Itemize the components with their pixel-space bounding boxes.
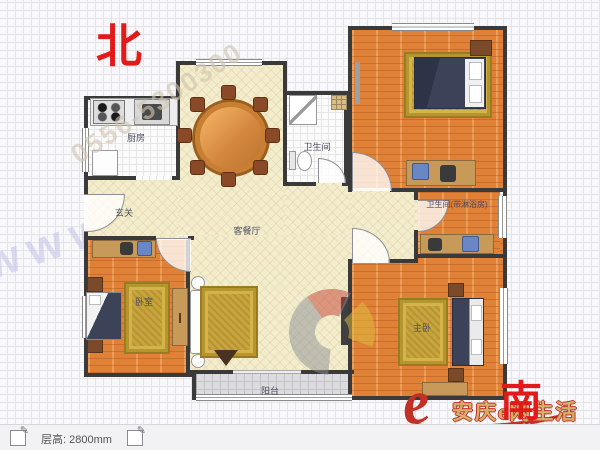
window xyxy=(196,59,262,66)
entrance-label: 玄关 xyxy=(104,208,144,219)
computer xyxy=(428,238,442,251)
sink-basin xyxy=(142,104,162,120)
bath-shelf xyxy=(331,95,347,110)
wall-segment xyxy=(414,254,507,258)
pencil-icon: ✎ xyxy=(20,424,29,437)
hall-floor xyxy=(285,182,350,235)
bedroom2-bed xyxy=(86,292,122,340)
logo-watermark xyxy=(272,280,392,384)
status-bar: ✎ 层高: 2800mm ✎ xyxy=(0,424,600,450)
wardrobe xyxy=(172,288,188,346)
nightstand xyxy=(470,40,492,56)
computer xyxy=(440,165,456,182)
wall-segment xyxy=(176,61,180,100)
dining-chair xyxy=(265,128,280,143)
pillow xyxy=(469,62,482,80)
balcony-label: 阳台 xyxy=(250,386,290,397)
wardrobe-handle xyxy=(179,313,181,323)
pillow xyxy=(471,305,482,321)
mirror xyxy=(355,62,360,104)
compass-south: 南 xyxy=(500,368,542,429)
bedroom2-rug xyxy=(124,282,170,354)
edit-icon[interactable]: ✎ xyxy=(10,430,26,446)
pillow xyxy=(469,85,482,103)
nightstand xyxy=(87,277,103,292)
edit-icon[interactable]: ✎ xyxy=(127,430,143,446)
pillow xyxy=(89,295,101,305)
bedroom3-bed xyxy=(452,298,484,366)
shower xyxy=(289,95,317,125)
dining-chair xyxy=(253,160,268,175)
bay-window xyxy=(498,196,507,238)
dining-chair xyxy=(190,160,205,175)
bedroom-left-label: 卧室 xyxy=(124,297,164,308)
desk-chair xyxy=(412,163,429,180)
computer xyxy=(120,242,133,255)
desk-chair xyxy=(462,236,479,252)
dining-chair xyxy=(177,128,192,143)
kitchen-label: 厨房 xyxy=(116,133,156,144)
wall-segment xyxy=(84,373,194,377)
living-rug xyxy=(200,286,258,358)
dining-chair xyxy=(221,172,236,187)
bedroom1-bed xyxy=(414,57,486,109)
kitchen-sink xyxy=(134,99,170,125)
window xyxy=(392,23,474,31)
dining-chair xyxy=(253,97,268,112)
window xyxy=(82,128,89,172)
bathroom-label: 卫生间 xyxy=(295,142,339,153)
door-opening xyxy=(136,176,172,180)
floor-height-label: 层高: 2800mm xyxy=(41,431,112,447)
stove xyxy=(93,100,125,124)
fridge xyxy=(92,150,118,176)
dining-chair xyxy=(190,97,205,112)
pencil-icon: ✎ xyxy=(137,424,146,437)
desk-chair xyxy=(137,241,152,256)
wall-segment xyxy=(283,61,287,186)
pillow xyxy=(471,339,482,355)
toilet-bowl xyxy=(297,151,312,171)
nightstand xyxy=(87,338,103,353)
window xyxy=(499,288,508,364)
nightstand xyxy=(448,283,464,297)
bedroom-master-label: 主卧 xyxy=(402,323,442,334)
dining-chair xyxy=(221,85,236,100)
nightstand xyxy=(448,368,464,382)
floorplan-canvas: www.house.net xyxy=(0,0,600,450)
toilet-tank xyxy=(289,151,296,170)
living-dining-label: 客餐厅 xyxy=(222,226,272,237)
bath-master-label: 卫生间(带淋浴房) xyxy=(417,200,497,210)
cabinet xyxy=(422,382,468,396)
compass-north: 北 xyxy=(96,10,142,76)
